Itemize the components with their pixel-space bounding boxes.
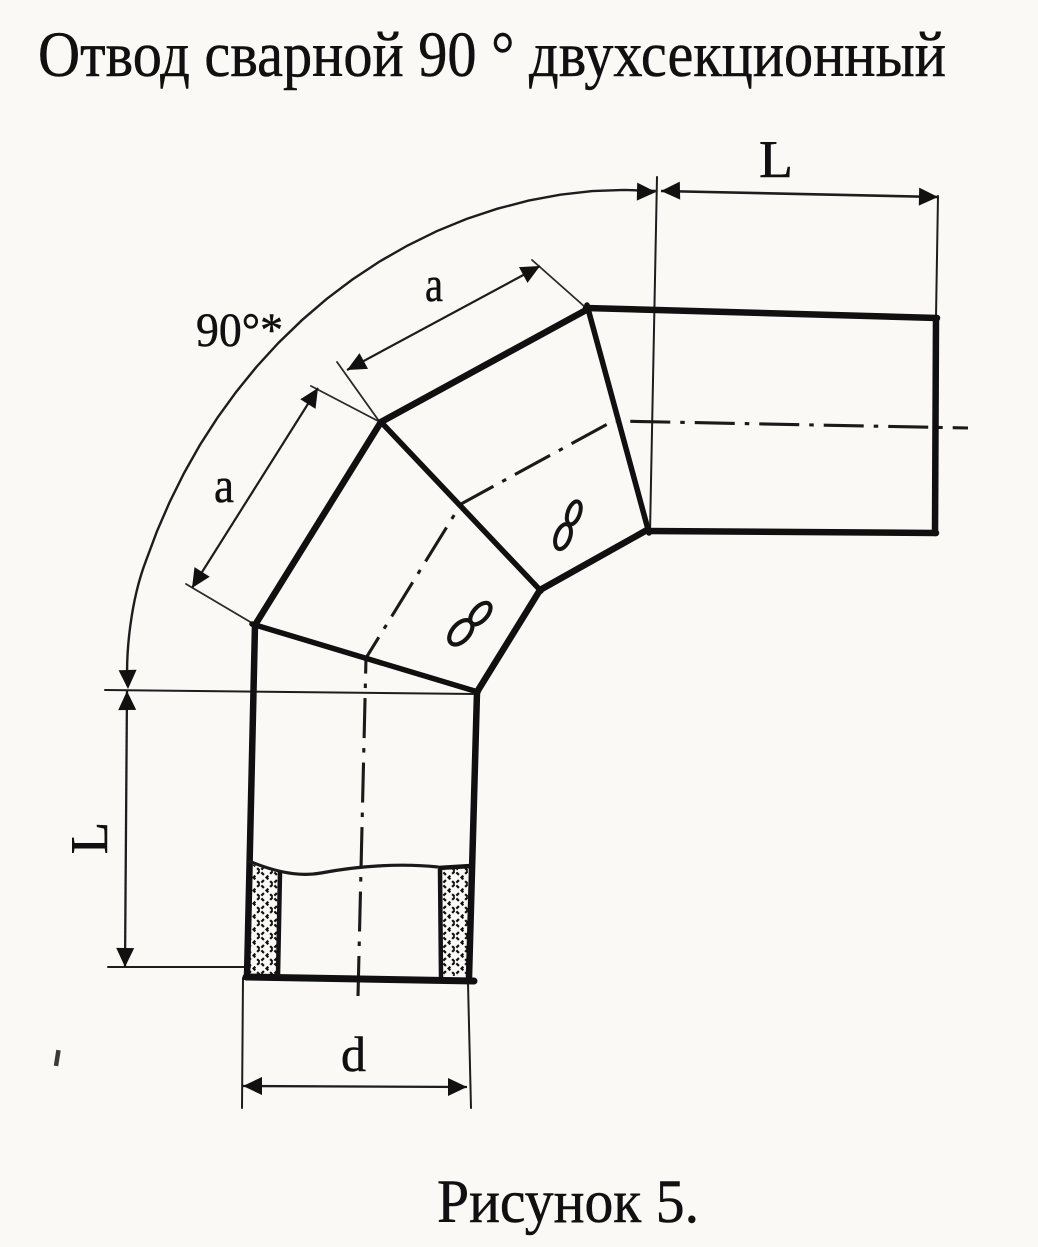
svg-text:a: a [425, 256, 443, 312]
svg-text:Отвод сварной 90 ° двухсекцион: Отвод сварной 90 ° двухсекционный [38, 19, 946, 91]
svg-text:a: a [214, 457, 234, 513]
svg-text:L: L [61, 822, 119, 854]
svg-text:d: d [341, 1026, 366, 1082]
svg-text:L: L [759, 131, 793, 189]
svg-text:Рисунок 5.: Рисунок 5. [437, 1169, 699, 1236]
svg-text:90°*: 90°* [196, 304, 283, 357]
